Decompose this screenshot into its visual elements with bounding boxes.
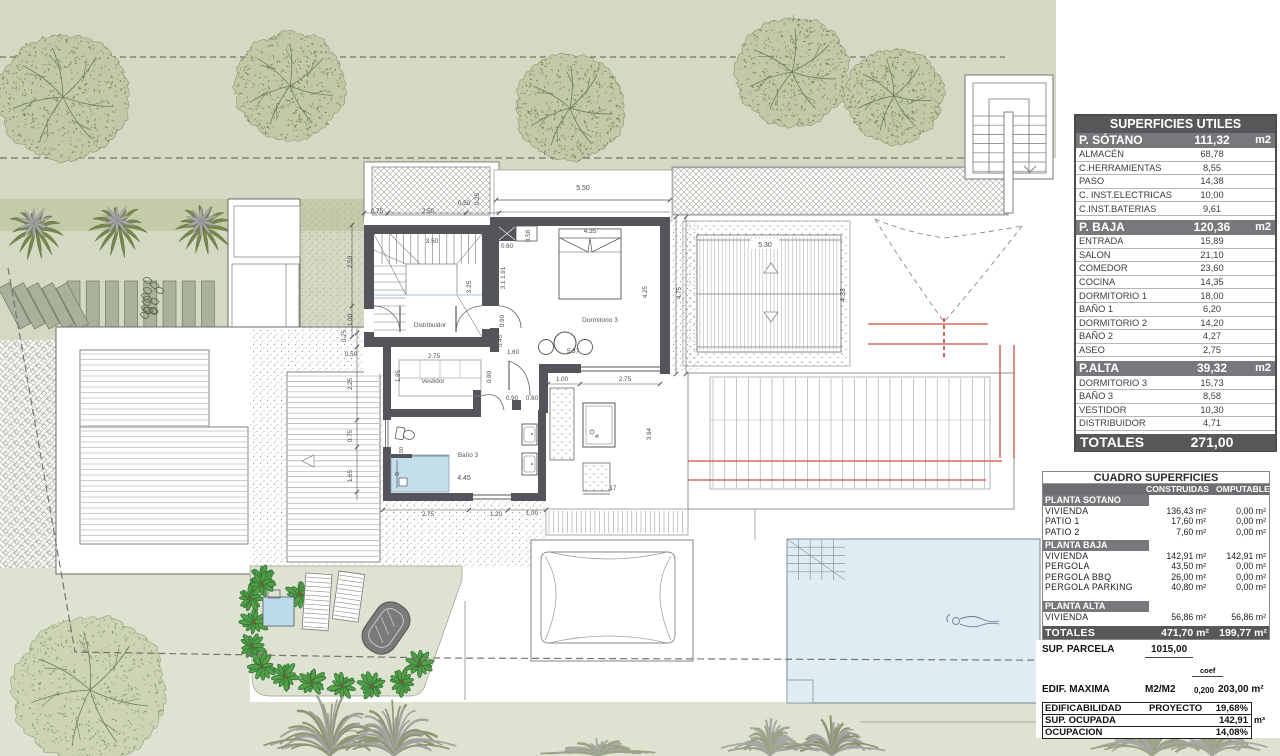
svg-text:1.00: 1.00 xyxy=(556,376,569,383)
svg-text:2.25: 2.25 xyxy=(347,377,354,390)
svg-text:4.33: 4.33 xyxy=(840,288,847,302)
svg-text:1.00: 1.00 xyxy=(526,510,539,517)
svg-text:0.25: 0.25 xyxy=(341,329,348,342)
svg-text:0.75: 0.75 xyxy=(371,208,384,215)
svg-text:1.65: 1.65 xyxy=(347,469,354,482)
svg-text:1.20: 1.20 xyxy=(490,511,503,518)
svg-text:0.60: 0.60 xyxy=(501,243,514,250)
svg-text:0.90: 0.90 xyxy=(506,395,519,402)
svg-text:5.50: 5.50 xyxy=(576,185,590,192)
svg-text:0.90: 0.90 xyxy=(486,370,493,383)
svg-text:3.50: 3.50 xyxy=(426,238,439,245)
svg-text:5.37: 5.37 xyxy=(567,348,580,355)
svg-text:4.75: 4.75 xyxy=(676,286,683,299)
svg-text:Baño 3: Baño 3 xyxy=(458,452,479,459)
svg-text:0.90: 0.90 xyxy=(499,314,506,327)
svg-text:4.35: 4.35 xyxy=(584,228,597,235)
svg-text:Vestidor: Vestidor xyxy=(421,378,445,385)
svg-text:2.50: 2.50 xyxy=(422,208,435,215)
svg-text:3.94: 3.94 xyxy=(646,427,653,440)
svg-text:4.45: 4.45 xyxy=(457,475,471,482)
svg-text:50: 50 xyxy=(399,447,405,453)
svg-text:2.50: 2.50 xyxy=(347,255,354,268)
svg-text:0.60: 0.60 xyxy=(526,395,539,402)
svg-text:1.60: 1.60 xyxy=(507,349,520,356)
svg-text:0.75: 0.75 xyxy=(347,429,354,442)
svg-text:0.25: 0.25 xyxy=(474,192,481,205)
svg-text:2.75: 2.75 xyxy=(619,376,632,383)
svg-text:2.75: 2.75 xyxy=(422,511,435,518)
svg-text:Dormitorio 3: Dormitorio 3 xyxy=(582,317,618,324)
svg-text:0.50: 0.50 xyxy=(458,200,471,207)
svg-text:0.50: 0.50 xyxy=(345,351,358,358)
svg-text:1.85: 1.85 xyxy=(395,369,402,382)
svg-text:4.25: 4.25 xyxy=(642,285,649,298)
svg-text:0.45: 0.45 xyxy=(497,334,504,347)
svg-text:0.58: 0.58 xyxy=(525,229,532,242)
svg-text:5.30: 5.30 xyxy=(758,242,772,249)
svg-text:3.1 1.91: 3.1 1.91 xyxy=(500,266,507,289)
svg-text:2.75: 2.75 xyxy=(428,353,441,360)
svg-text:1.00: 1.00 xyxy=(347,313,354,326)
svg-text:3.25: 3.25 xyxy=(466,280,473,293)
svg-text:Distribuidor: Distribuidor xyxy=(414,322,447,329)
